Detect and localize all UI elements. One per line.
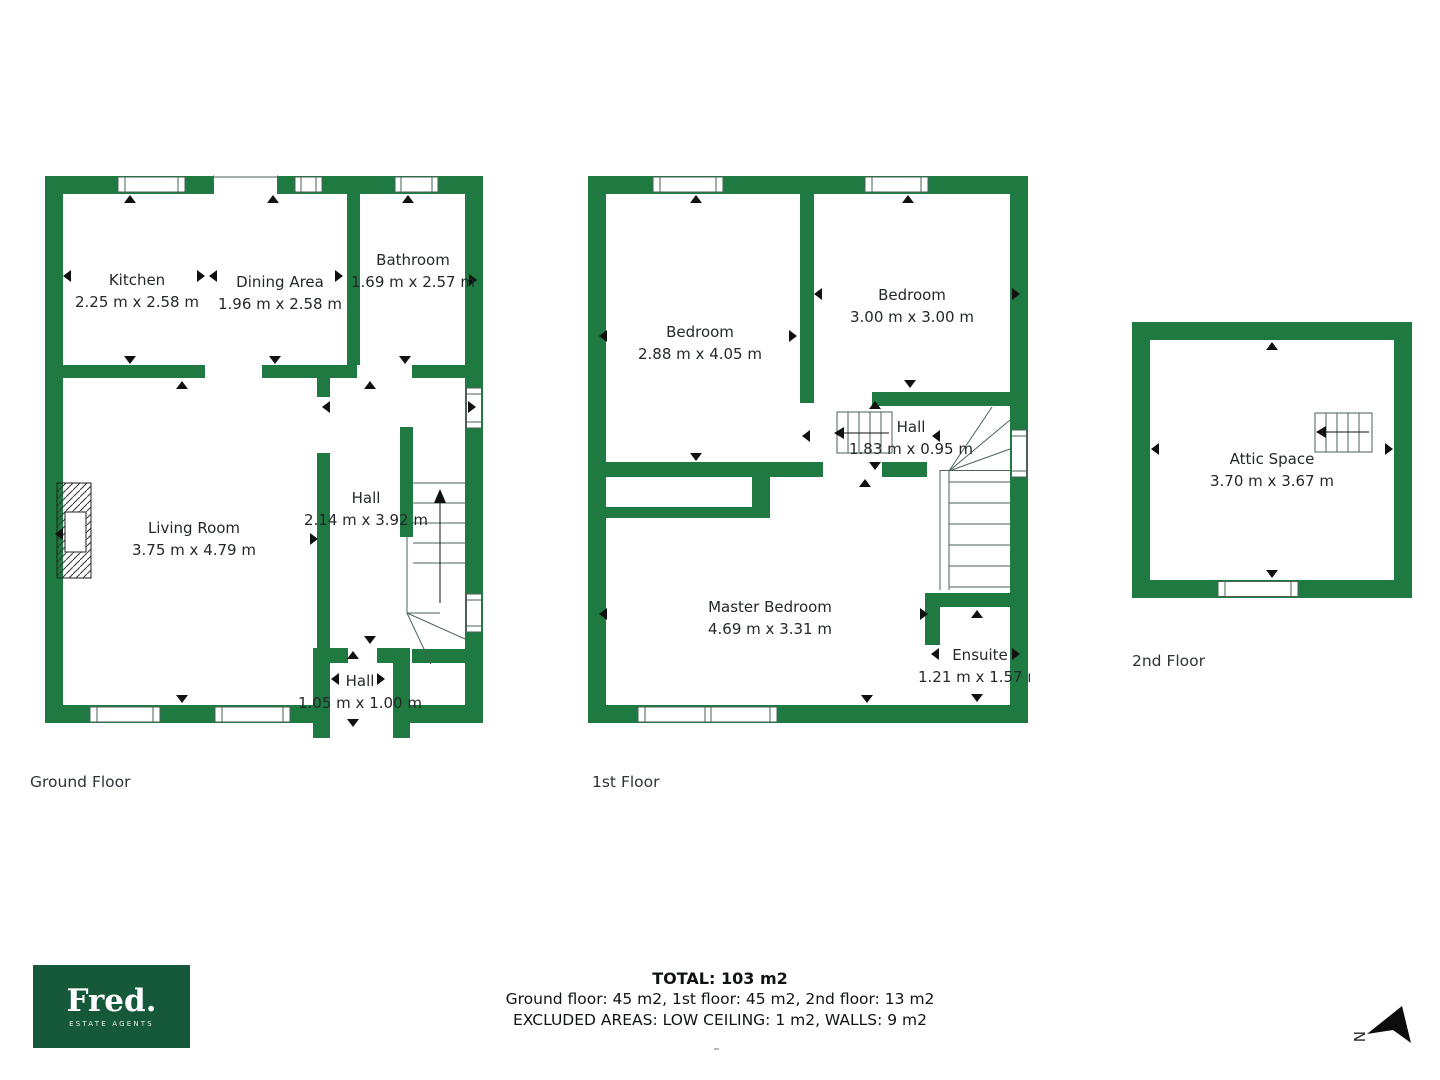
stairs-up-arrow — [434, 489, 446, 503]
north-arrow-pointer — [1367, 1006, 1411, 1043]
window-icon — [653, 177, 723, 192]
room-dimensions: 3.75 m x 4.79 m — [132, 541, 256, 559]
room-label: Bathroom — [376, 251, 450, 269]
room-dimensions: 3.70 m x 3.67 m — [1210, 472, 1334, 490]
room-dimensions: 4.69 m x 3.31 m — [708, 620, 832, 638]
room-label: Master Bedroom — [708, 598, 832, 616]
window-icon — [215, 707, 290, 722]
stairs-icon — [1315, 413, 1372, 452]
room-label: Hall — [352, 489, 381, 507]
area-summary: TOTAL: 103 m2 Ground floor: 45 m2, 1st f… — [0, 968, 1440, 1031]
window-icon — [1012, 430, 1027, 477]
excluded-areas-text: EXCLUDED AREAS: LOW CEILING: 1 m2, WALLS… — [0, 1010, 1440, 1031]
room-dimensions: 2.88 m x 4.05 m — [638, 345, 762, 363]
agency-logo-tagline: ESTATE AGENTS — [69, 1020, 154, 1028]
footer-mark — [714, 1048, 719, 1050]
floor-areas-text: Ground floor: 45 m2, 1st floor: 45 m2, 2… — [0, 989, 1440, 1010]
window-icon — [865, 177, 928, 192]
north-arrow-icon: N — [1340, 995, 1420, 1055]
floorplan-ground-floor: Kitchen 2.25 m x 2.58 m Dining Area 1.96… — [45, 175, 485, 745]
window-icon — [395, 177, 438, 192]
room-label: Bedroom — [666, 323, 734, 341]
room-label: Ensuite — [952, 646, 1008, 664]
floorplan-page: Kitchen 2.25 m x 2.58 m Dining Area 1.96… — [0, 0, 1440, 1080]
floor-caption-first: 1st Floor — [592, 773, 660, 791]
room-label: Hall — [346, 672, 375, 690]
agency-logo: Fred. ESTATE AGENTS — [33, 965, 190, 1048]
room-dimensions: 1.83 m x 0.95 m — [849, 440, 973, 458]
window-icon — [90, 707, 160, 722]
room-dimensions: 1.05 m x 1.00 m — [298, 694, 422, 712]
room-label: Dining Area — [236, 273, 324, 291]
floorplan-first-floor: Bedroom 2.88 m x 4.05 m Bedroom 3.00 m x… — [588, 175, 1030, 745]
total-area-text: TOTAL: 103 m2 — [0, 968, 1440, 989]
north-arrow-label: N — [1350, 1031, 1368, 1042]
room-dimensions: 3.00 m x 3.00 m — [850, 308, 974, 326]
room-label: Kitchen — [109, 271, 165, 289]
window-icons — [1218, 582, 1298, 597]
room-dimensions: 1.96 m x 2.58 m — [218, 295, 342, 313]
window-icon — [467, 594, 482, 632]
room-labels: Bedroom 2.88 m x 4.05 m Bedroom 3.00 m x… — [638, 286, 1030, 686]
room-label: Hall — [897, 418, 926, 436]
room-label: Attic Space — [1230, 450, 1315, 468]
room-label: Living Room — [148, 519, 240, 537]
agency-logo-name: Fred. — [67, 986, 157, 1017]
room-dimensions: 2.25 m x 2.58 m — [75, 293, 199, 311]
room-dimensions: 1.21 m x 1.57 m — [918, 668, 1030, 686]
door-opening — [213, 176, 278, 195]
window-icon — [638, 707, 777, 722]
floorplan-second-floor: Attic Space 3.70 m x 3.67 m — [1130, 320, 1414, 604]
room-dimensions: 2.14 m x 3.92 m — [304, 511, 428, 529]
window-icon — [118, 177, 185, 192]
room-labels: Attic Space 3.70 m x 3.67 m — [1210, 450, 1334, 490]
floor-caption-ground: Ground Floor — [30, 773, 131, 791]
window-icon — [1218, 582, 1298, 597]
floor-caption-second: 2nd Floor — [1132, 652, 1205, 670]
room-label: Bedroom — [878, 286, 946, 304]
room-dimensions: 1.69 m x 2.57 m — [351, 273, 475, 291]
room-labels: Kitchen 2.25 m x 2.58 m Dining Area 1.96… — [75, 251, 475, 712]
window-icon — [295, 177, 322, 192]
stairs-icon — [940, 407, 1010, 590]
